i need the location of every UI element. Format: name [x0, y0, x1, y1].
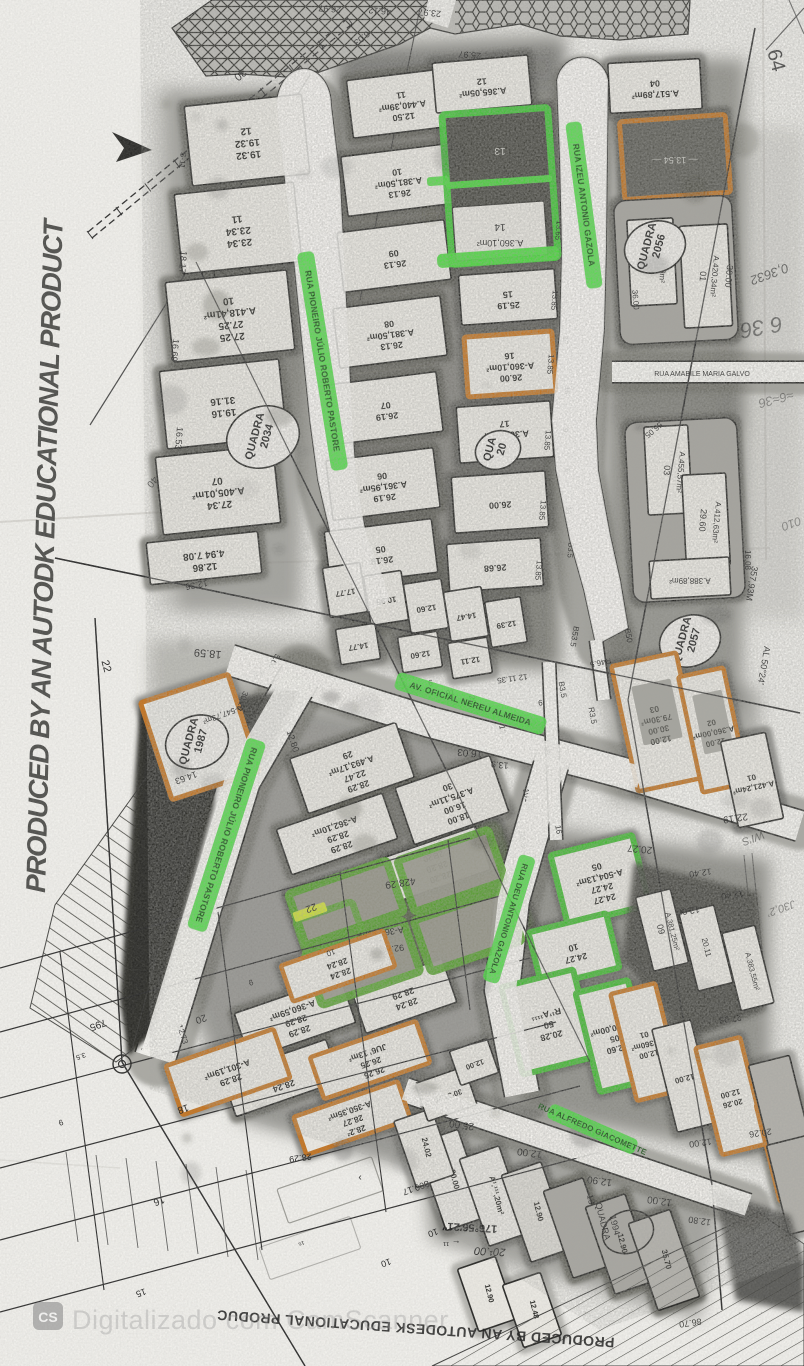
svg-text:Digitalizado com CamScanner: Digitalizado com CamScanner	[72, 1305, 449, 1335]
svg-text:CS: CS	[38, 1309, 57, 1325]
